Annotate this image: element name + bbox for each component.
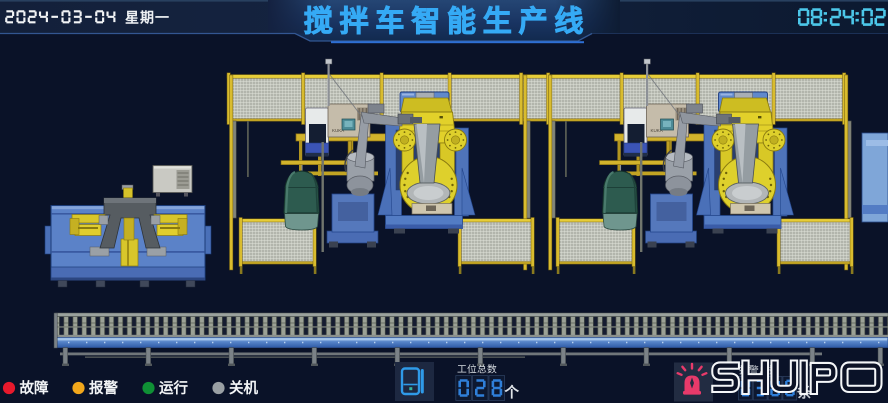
svg-text:运行: 运行 xyxy=(159,379,188,397)
svg-text:故障: 故障 xyxy=(20,379,49,397)
svg-text:搅拌车智能生产线: 搅拌车智能生产线 xyxy=(304,4,590,38)
svg-text:报警: 报警 xyxy=(89,379,118,397)
svg-text:工位总数: 工位总数 xyxy=(457,362,497,375)
svg-text:星期一: 星期一 xyxy=(125,9,170,25)
svg-text:个: 个 xyxy=(504,385,520,402)
svg-text:关机: 关机 xyxy=(229,379,258,397)
